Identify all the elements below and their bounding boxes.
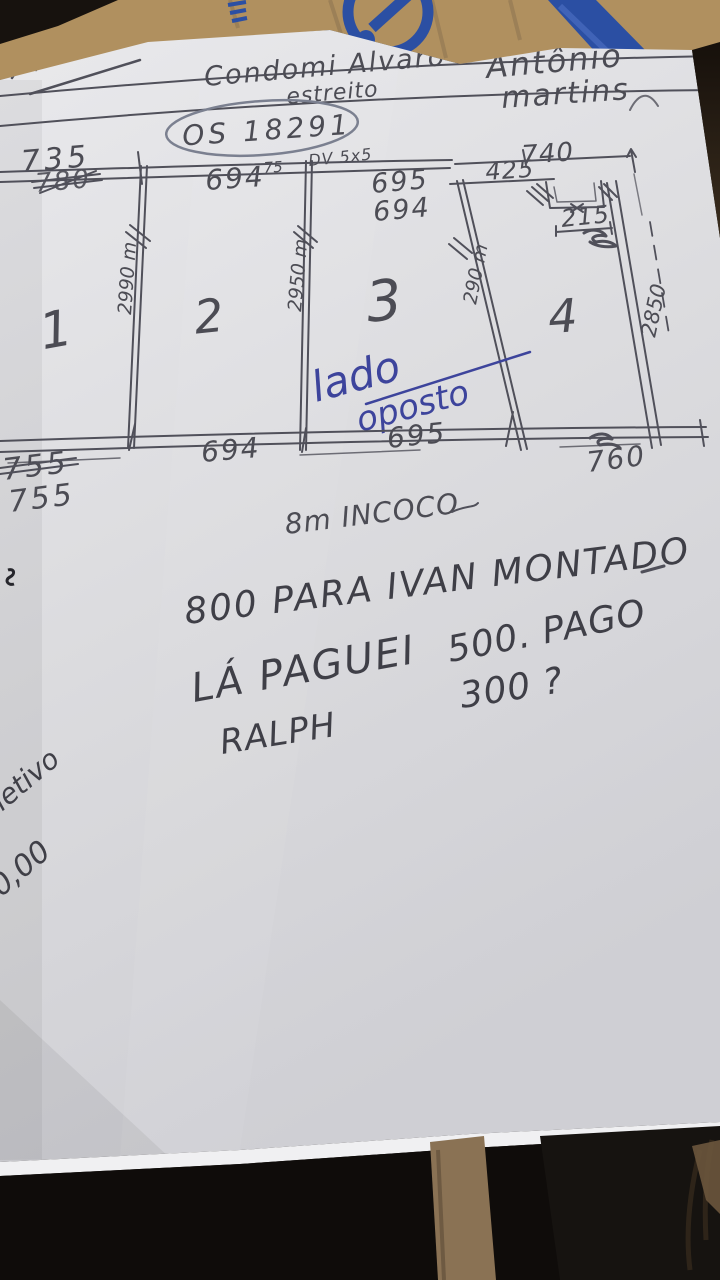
dim-bottom-panel3: 695: [385, 416, 448, 455]
panel-number-4: 4: [546, 288, 579, 344]
photo-stage: Condomi Alvaro estreito Antônio martins …: [0, 0, 720, 1280]
photo-of-sketch: Condomi Alvaro estreito Antônio martins …: [0, 0, 720, 1280]
dim-recess-total: 740: [520, 137, 575, 171]
panel-number-2: 2: [191, 288, 226, 345]
dim-bottom-panel2: 694: [200, 431, 262, 469]
dim-top-panel3-alt: 694: [372, 192, 432, 228]
panel-number-3: 3: [363, 267, 405, 335]
